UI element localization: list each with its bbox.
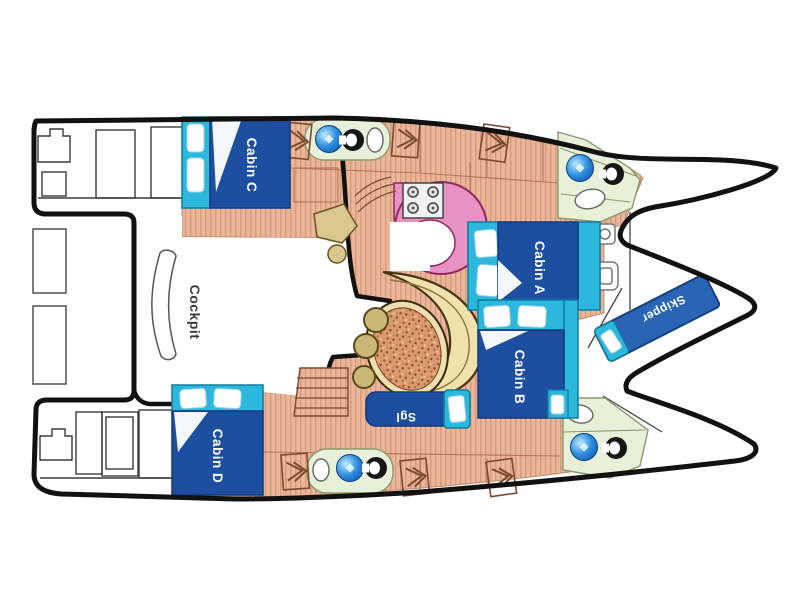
stool <box>364 308 388 332</box>
companionway-steps-starboard <box>294 368 348 416</box>
deck-plan-canvas: Cockpit <box>0 0 800 600</box>
stool <box>354 334 378 358</box>
catamaran-deck-plan: Cockpit <box>0 0 800 600</box>
stool <box>353 366 375 388</box>
cabin-a-bed: Cabin A <box>468 222 600 310</box>
cockpit-label: Cockpit <box>187 285 203 340</box>
sink-icon <box>316 126 343 153</box>
pillow <box>483 305 510 328</box>
pillow <box>213 388 241 408</box>
toilet-bowl <box>367 128 383 152</box>
pillow <box>474 229 498 258</box>
cabin-b-label: Cabin B <box>512 350 527 405</box>
cabin-d-label: Cabin D <box>210 429 225 484</box>
pillow <box>179 388 206 409</box>
pillow <box>187 124 204 152</box>
toilet-bowl <box>313 459 329 481</box>
cabin-d-bed: Cabin D <box>172 385 263 495</box>
cabin-a-label: Cabin A <box>532 241 547 295</box>
cabin-b-bed: Cabin B <box>478 300 578 418</box>
bathroom-port-aft <box>305 119 390 160</box>
pillow <box>551 395 564 414</box>
single-berth: Sgl <box>366 390 470 428</box>
pillow <box>476 264 500 296</box>
bathroom-starboard-aft <box>307 449 393 493</box>
sink-icon <box>571 434 598 461</box>
sink-icon <box>567 155 594 182</box>
single-berth-label: Sgl <box>396 410 416 424</box>
galley-stove <box>403 183 443 218</box>
pillow <box>517 305 546 327</box>
pillow <box>187 158 204 192</box>
pillow <box>448 395 467 423</box>
sink-icon <box>337 455 364 482</box>
cabin-c-label: Cabin C <box>244 138 259 193</box>
cabin-c-bed: Cabin C <box>182 117 290 208</box>
davit-rack <box>33 229 66 384</box>
